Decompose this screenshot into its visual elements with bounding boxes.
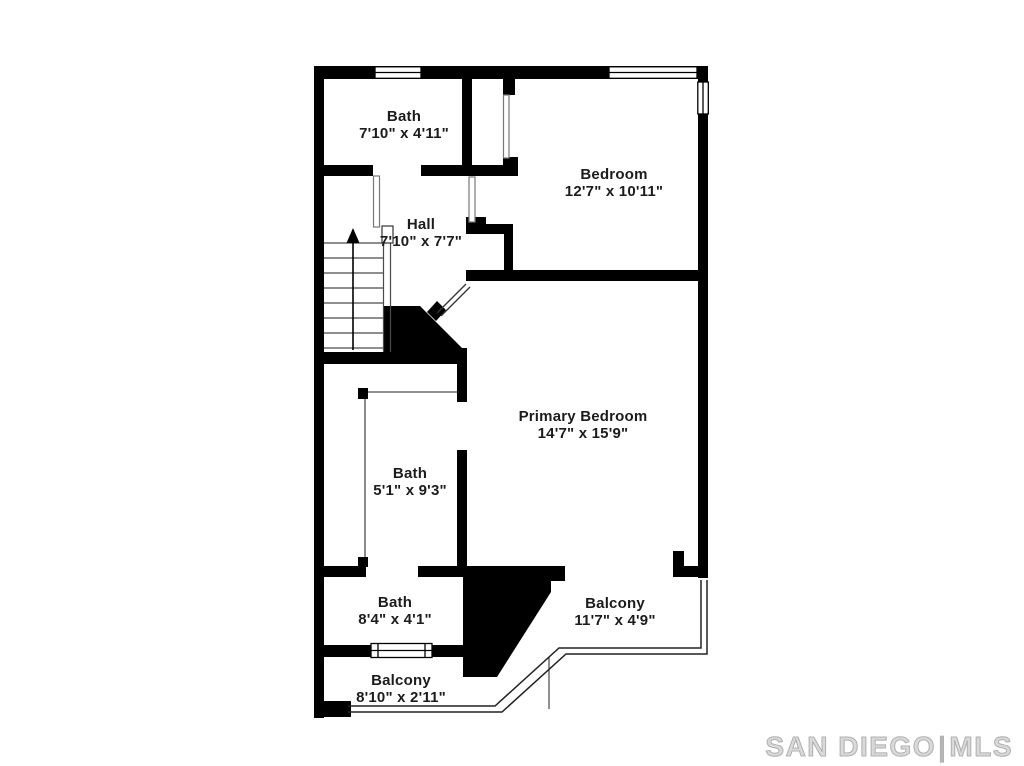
room-label-balcony-left: Balcony 8'10" x 2'11" bbox=[356, 672, 446, 706]
wall-segment bbox=[673, 566, 708, 577]
room-dimensions: 5'1" x 9'3" bbox=[373, 482, 447, 499]
room-dimensions: 8'10" x 2'11" bbox=[356, 689, 446, 706]
window-icon bbox=[609, 67, 697, 79]
room-dimensions: 8'4" x 4'1" bbox=[358, 611, 432, 628]
room-dimensions: 11'7" x 4'9" bbox=[574, 612, 655, 629]
wall-segment bbox=[457, 348, 467, 402]
wall-segment bbox=[457, 450, 467, 577]
wall-segment bbox=[324, 165, 373, 176]
stairs-up-arrow-icon bbox=[347, 228, 360, 350]
room-name: Bath bbox=[359, 108, 449, 125]
room-label-bedroom: Bedroom 12'7" x 10'11" bbox=[565, 166, 663, 200]
wall-segment bbox=[466, 270, 708, 281]
wall-segment bbox=[324, 701, 351, 717]
window-icon bbox=[698, 82, 709, 114]
wall-segment bbox=[324, 645, 371, 657]
window-icon bbox=[375, 67, 421, 79]
corner-mark bbox=[358, 388, 368, 399]
room-label-hall: Hall 7'10" x 7'7" bbox=[380, 216, 462, 250]
watermark-brand: SAN DIEGO bbox=[765, 731, 936, 762]
room-dimensions: 12'7" x 10'11" bbox=[565, 183, 663, 200]
room-label-bath-lower: Bath 8'4" x 4'1" bbox=[358, 594, 432, 628]
wall-segment bbox=[432, 645, 463, 657]
room-name: Bath bbox=[373, 465, 447, 482]
lower-mass bbox=[463, 566, 565, 677]
room-label-bath-upper: Bath 7'10" x 4'11" bbox=[359, 108, 449, 142]
watermark-separator: | bbox=[938, 731, 947, 762]
window-icon bbox=[371, 644, 432, 658]
room-dimensions: 14'7" x 15'9" bbox=[519, 425, 648, 442]
door-leaf-icon bbox=[374, 176, 380, 227]
room-dimensions: 7'10" x 4'11" bbox=[359, 125, 449, 142]
floorplan-drawing bbox=[0, 0, 1024, 766]
room-dimensions: 7'10" x 7'7" bbox=[380, 233, 462, 250]
room-name: Primary Bedroom bbox=[519, 408, 648, 425]
room-label-balcony-right: Balcony 11'7" x 4'9" bbox=[574, 595, 655, 629]
door-leaf-icon bbox=[504, 95, 510, 158]
wall-segment bbox=[698, 66, 708, 578]
floorplan-canvas: Bath 7'10" x 4'11" Bedroom 12'7" x 10'11… bbox=[0, 0, 1024, 766]
door-leaf-icon bbox=[469, 177, 475, 222]
room-name: Bedroom bbox=[565, 166, 663, 183]
wall-segment bbox=[324, 566, 366, 577]
room-name: Balcony bbox=[356, 672, 446, 689]
room-label-bath-middle: Bath 5'1" x 9'3" bbox=[373, 465, 447, 499]
wall-segment bbox=[503, 79, 515, 95]
wall-segment bbox=[314, 66, 324, 718]
corner-mark bbox=[358, 557, 368, 567]
room-name: Balcony bbox=[574, 595, 655, 612]
room-name: Bath bbox=[358, 594, 432, 611]
wall-segment bbox=[673, 551, 684, 567]
watermark-suffix: MLS bbox=[949, 731, 1013, 762]
mls-watermark: SAN DIEGO|MLS bbox=[765, 731, 1013, 763]
stair-mass bbox=[383, 306, 463, 364]
room-label-primary-bedroom: Primary Bedroom 14'7" x 15'9" bbox=[519, 408, 648, 442]
wall-segment bbox=[503, 157, 518, 169]
wall-segment bbox=[462, 79, 472, 173]
room-name: Hall bbox=[380, 216, 462, 233]
